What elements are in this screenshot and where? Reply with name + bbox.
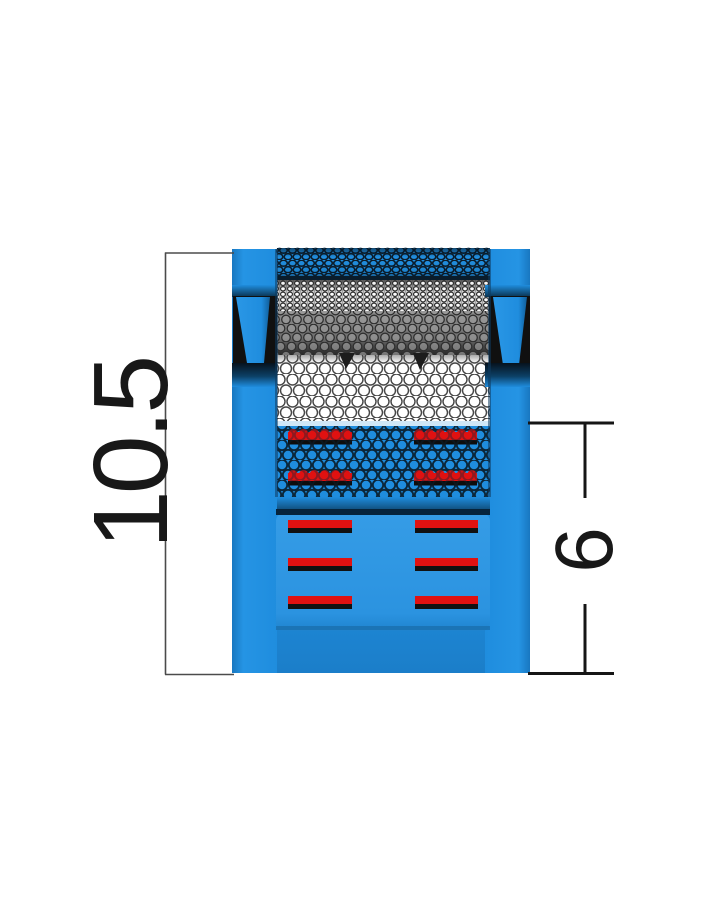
svg-text:6: 6 xyxy=(539,527,630,573)
svg-text:10.5: 10.5 xyxy=(72,359,190,549)
